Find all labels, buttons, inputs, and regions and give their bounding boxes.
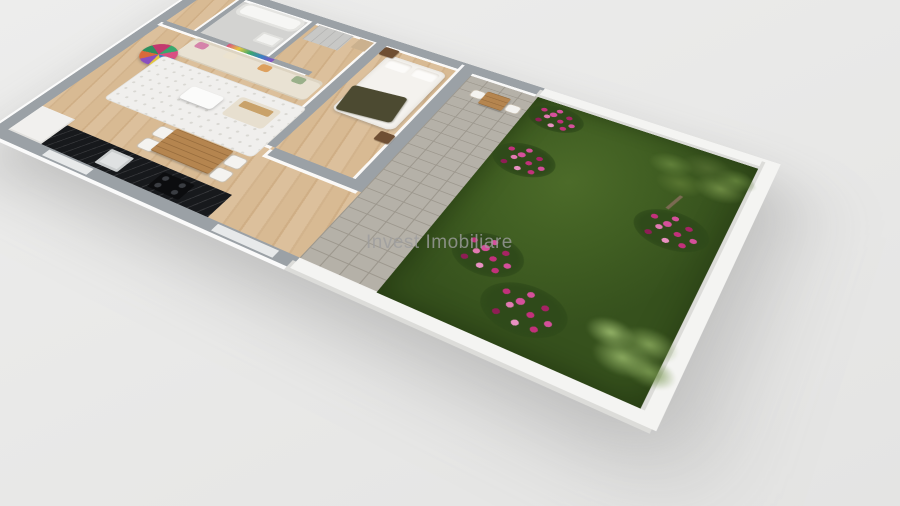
pillow-green: [290, 75, 308, 85]
bed-pillow: [409, 67, 441, 83]
property-plan: [0, 0, 781, 431]
pillow-cream: [222, 51, 239, 60]
floorplan-render: Invest Imobiliare: [0, 0, 900, 506]
watermark-text: Invest Imobiliare: [366, 232, 513, 254]
pillow-coral: [256, 64, 274, 73]
pillow-pink: [193, 41, 210, 50]
bed-pillow: [382, 59, 413, 75]
